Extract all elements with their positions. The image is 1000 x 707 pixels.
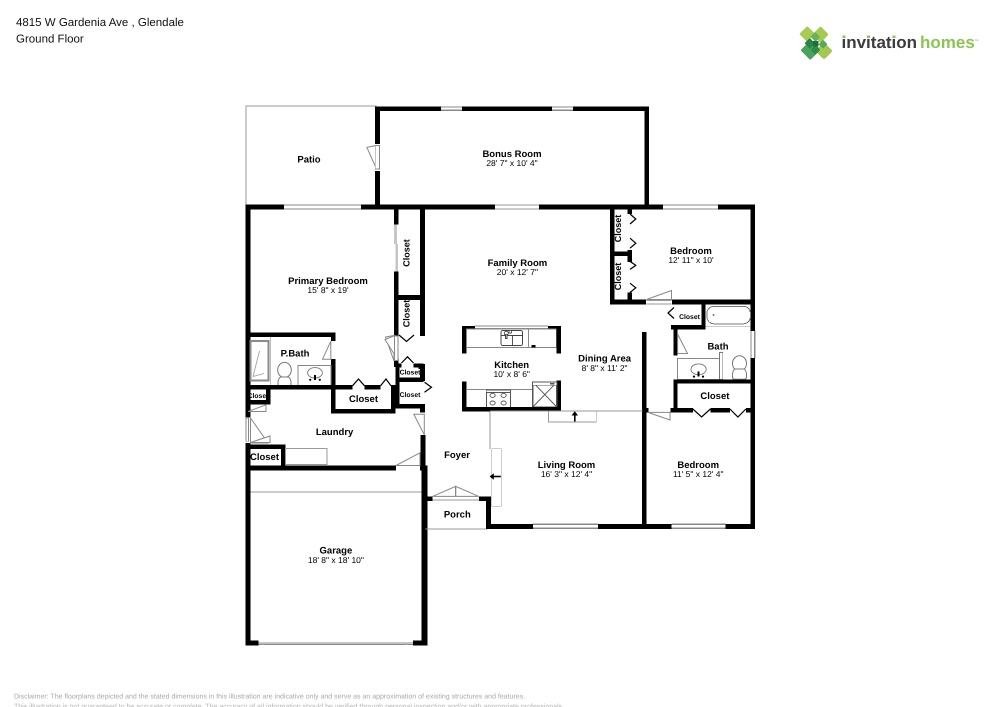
svg-text:8' 8" x 11' 2": 8' 8" x 11' 2" [582, 363, 628, 373]
svg-text:Laundry: Laundry [316, 427, 354, 438]
svg-text:Porch: Porch [444, 510, 471, 521]
svg-text:homes: homes [920, 33, 975, 52]
svg-text:11' 5" x 12' 4": 11' 5" x 12' 4" [673, 469, 724, 479]
svg-text:P.Bath: P.Bath [281, 349, 310, 360]
svg-text:Closet: Closet [613, 215, 623, 243]
svg-text:4815 W Gardenia Ave , Glendale: 4815 W Gardenia Ave , Glendale [16, 17, 184, 29]
svg-text:16' 3" x 12' 4": 16' 3" x 12' 4" [541, 469, 592, 479]
svg-text:™: ™ [975, 39, 980, 44]
svg-text:Closet: Closet [248, 393, 270, 400]
svg-text:Closet: Closet [700, 391, 730, 402]
svg-text:This illustration is not guara: This illustration is not guaranteed to b… [14, 702, 564, 707]
svg-text:18' 8" x 18' 10": 18' 8" x 18' 10" [308, 555, 364, 565]
svg-text:Closet: Closet [400, 392, 422, 399]
svg-text:20' x 12' 7": 20' x 12' 7" [497, 267, 538, 277]
svg-text:15' 8" x 19': 15' 8" x 19' [307, 285, 349, 295]
svg-text:12' 11" x 10': 12' 11" x 10' [668, 255, 714, 265]
svg-text:Closet: Closet [250, 452, 280, 463]
svg-text:10' x 8' 6": 10' x 8' 6" [493, 369, 530, 379]
svg-text:28' 7" x 10' 4": 28' 7" x 10' 4" [486, 158, 537, 168]
svg-text:Disclaimer: The floorplans dep: Disclaimer: The floorplans depicted and … [14, 693, 525, 701]
svg-text:Patio: Patio [297, 155, 320, 166]
svg-text:Ground Floor: Ground Floor [16, 34, 84, 46]
svg-text:Closet: Closet [613, 263, 623, 291]
svg-text:Closet: Closet [401, 300, 411, 328]
svg-text:Closet: Closet [400, 370, 422, 377]
svg-text:Bath: Bath [707, 342, 728, 353]
svg-text:Closet: Closet [401, 239, 411, 267]
svg-text:invitation: invitation [842, 33, 918, 52]
svg-text:Closet: Closet [679, 314, 701, 321]
svg-text:Foyer: Foyer [444, 450, 470, 461]
svg-text:Closet: Closet [349, 394, 379, 405]
